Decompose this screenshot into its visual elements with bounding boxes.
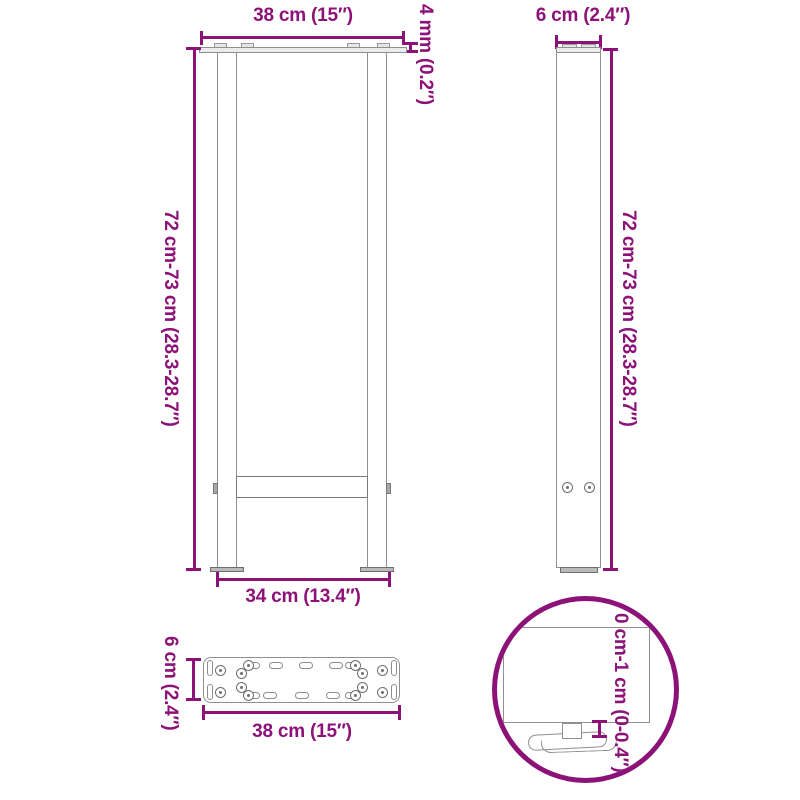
plate-slot-hole — [391, 684, 397, 700]
front-left-leg — [217, 52, 237, 568]
plate-width-dim-cap-right — [398, 705, 401, 720]
plate-slot-hole — [269, 662, 283, 669]
side-height-dim-line — [610, 48, 613, 571]
front-right-leg — [367, 52, 387, 568]
side-top-plate — [556, 47, 601, 53]
front-right-bolt-nub — [386, 483, 391, 494]
plate-slot-hole — [391, 660, 397, 676]
side-height-label: 72 cm-73 cm (28.3-28.7″) — [617, 210, 639, 427]
plate-screw-hole — [243, 690, 254, 701]
detail-dim-line — [598, 720, 601, 738]
front-bottom-dim-cap-right — [388, 572, 391, 587]
foot-detail-content: 0 cm-1 cm (0-0.4″) — [497, 601, 674, 778]
plate-slot-hole — [207, 684, 213, 700]
front-top-width-label: 38 cm (15″) — [183, 5, 423, 27]
front-top-dim-line — [201, 36, 405, 39]
front-bottom-width-label: 34 cm (13.4″) — [183, 586, 423, 608]
front-top-dim-cap-left — [200, 31, 203, 45]
plate-depth-dim-cap-bottom — [186, 698, 201, 701]
front-bottom-dim-cap-left — [216, 572, 219, 587]
detail-foot-pad-lip — [541, 738, 617, 754]
plate-depth-dim-line — [192, 660, 195, 701]
plate-screw-hole — [215, 665, 226, 676]
plate-width-dim-cap-left — [202, 705, 205, 720]
foot-detail-circle: 0 cm-1 cm (0-0.4″) — [492, 596, 679, 783]
front-height-dim-cap-bottom — [186, 568, 201, 571]
plate-screw-hole — [377, 665, 388, 676]
product-dimension-diagram: 38 cm (15″) 4 mm (0.2″) 72 cm-73 cm (28.… — [0, 0, 800, 800]
plate-screw-hole — [350, 660, 361, 671]
side-height-dim-cap-top — [603, 48, 618, 51]
front-height-dim-line — [193, 47, 196, 571]
front-height-dim-cap-top — [186, 47, 201, 50]
foot-adjustment-label: 0 cm-1 cm (0-0.4″) — [609, 613, 631, 773]
front-crossbar — [236, 476, 368, 498]
side-screw — [562, 482, 573, 493]
front-left-bolt-nub — [213, 483, 218, 494]
plate-slot-hole — [263, 692, 277, 699]
plate-slot-hole — [329, 662, 343, 669]
side-screw — [584, 482, 595, 493]
front-thickness-dim-line — [409, 44, 412, 51]
plate-screw-hole — [350, 690, 361, 701]
plate-screw-hole — [215, 687, 226, 698]
plate-slot-hole — [299, 662, 313, 669]
side-foot — [560, 567, 598, 573]
plate-slot-hole — [295, 692, 309, 699]
plate-depth-label: 6 cm (2.4″) — [159, 636, 181, 731]
side-depth-label: 6 cm (2.4″) — [498, 5, 668, 27]
plate-screw-hole — [243, 660, 254, 671]
plate-depth-dim-cap-top — [186, 658, 201, 661]
plate-slot-hole — [326, 692, 340, 699]
plate-width-dim-line — [203, 711, 401, 714]
front-plate-thickness-label: 4 mm (0.2″) — [414, 4, 436, 105]
plate-width-label: 38 cm (15″) — [202, 721, 402, 743]
front-bottom-dim-line — [217, 578, 391, 581]
plate-screw-hole — [377, 687, 388, 698]
detail-foot-stem — [562, 723, 582, 739]
plate-slot-hole — [207, 660, 213, 676]
side-height-dim-cap-bottom — [603, 568, 618, 571]
front-height-label: 72 cm-73 cm (28.3-28.7″) — [159, 210, 181, 427]
